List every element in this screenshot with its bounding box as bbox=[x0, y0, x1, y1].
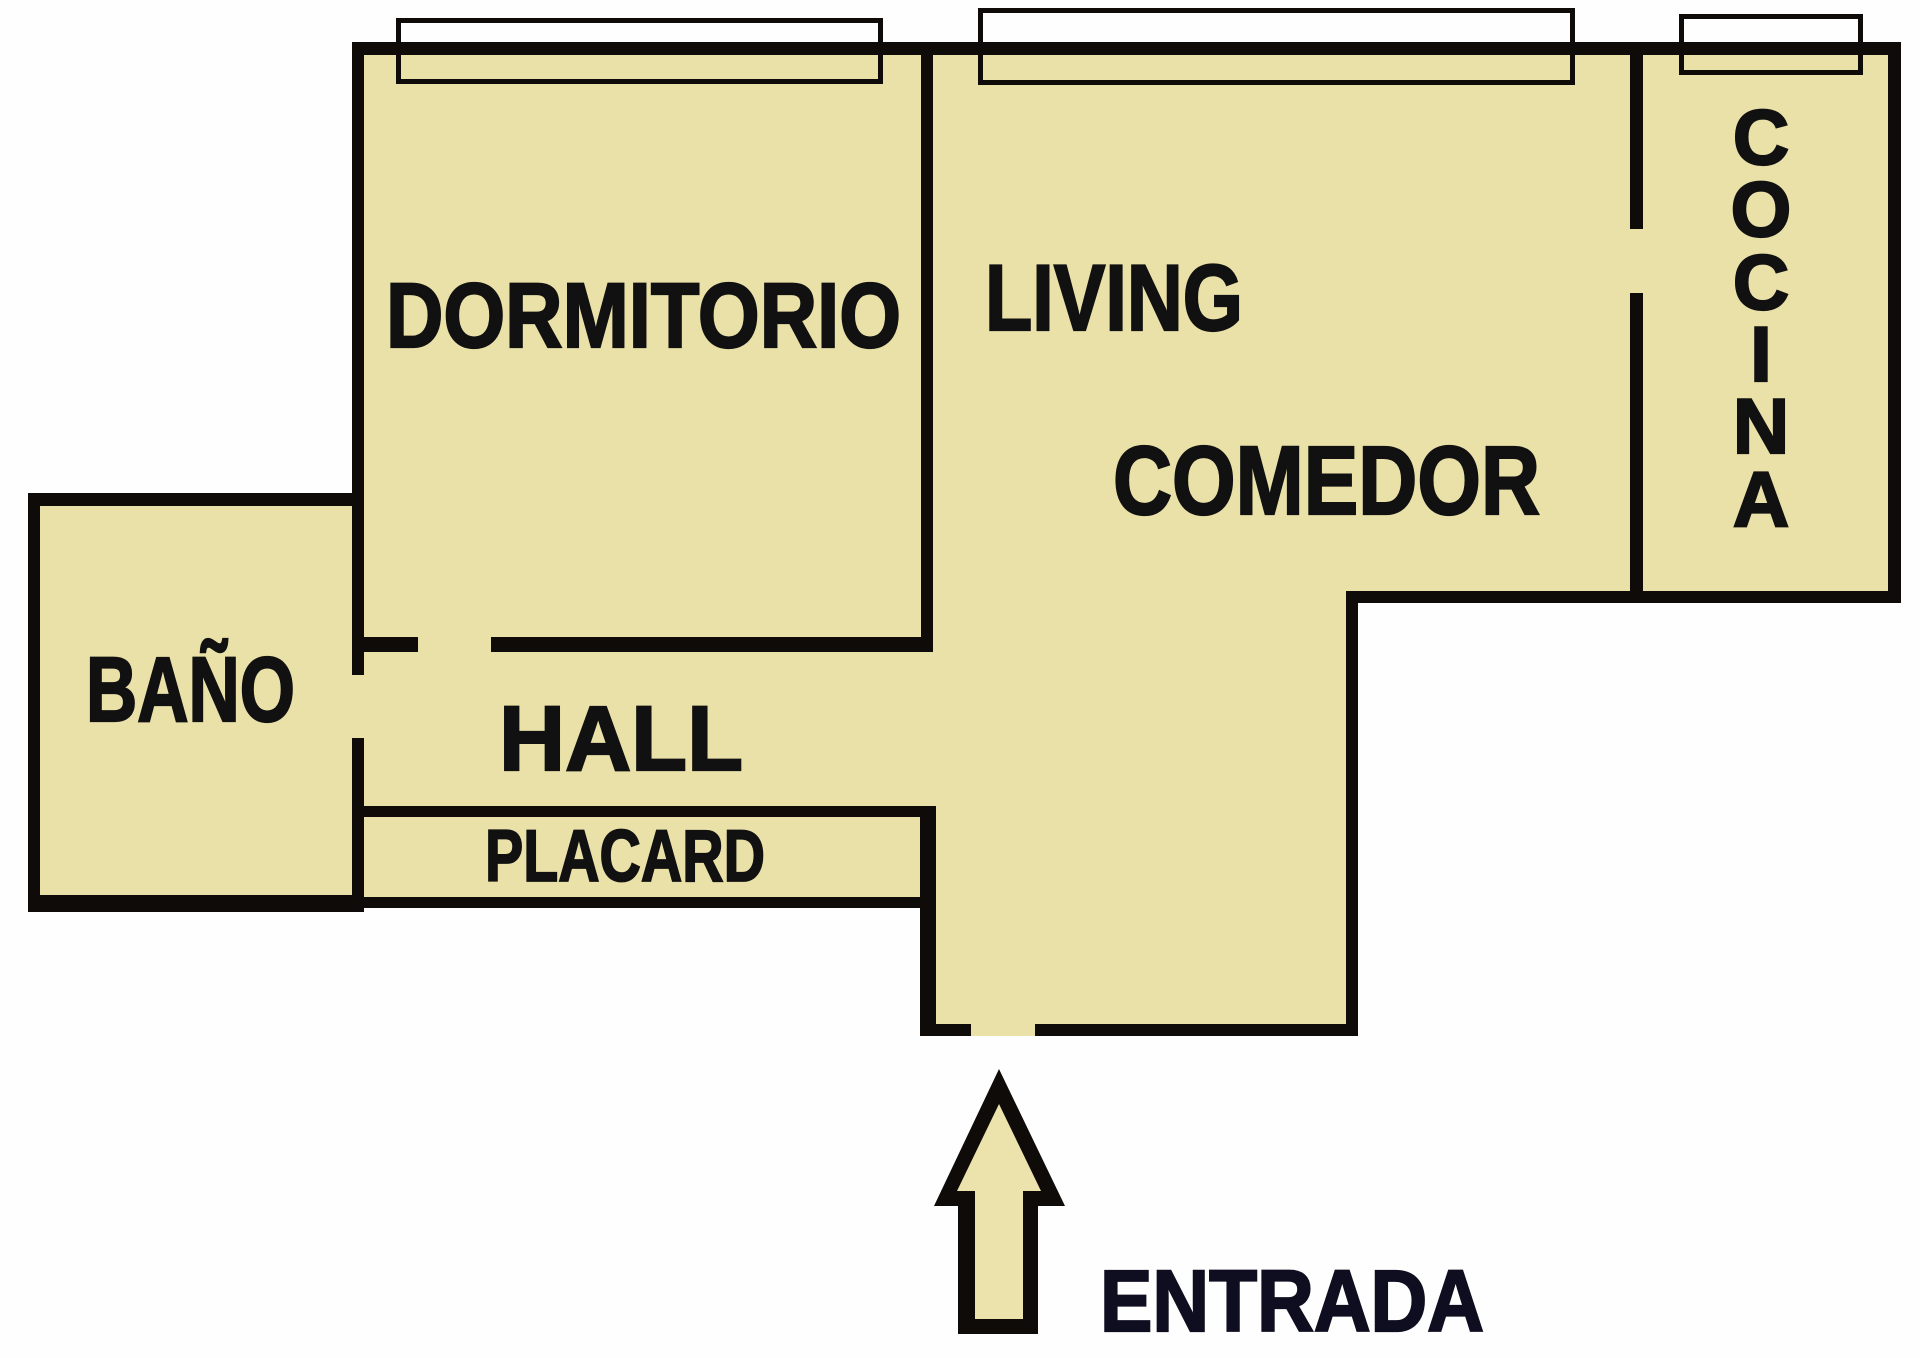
svg-text:PLACARD: PLACARD bbox=[485, 816, 765, 897]
svg-text:HALL: HALL bbox=[499, 688, 743, 790]
svg-text:A: A bbox=[1733, 455, 1789, 543]
svg-text:COMEDOR: COMEDOR bbox=[1113, 426, 1540, 535]
svg-text:DORMITORIO: DORMITORIO bbox=[386, 265, 901, 367]
svg-text:LIVING: LIVING bbox=[985, 245, 1243, 350]
svg-text:BAÑO: BAÑO bbox=[86, 638, 295, 741]
svg-text:ENTRADA: ENTRADA bbox=[1100, 1253, 1484, 1350]
